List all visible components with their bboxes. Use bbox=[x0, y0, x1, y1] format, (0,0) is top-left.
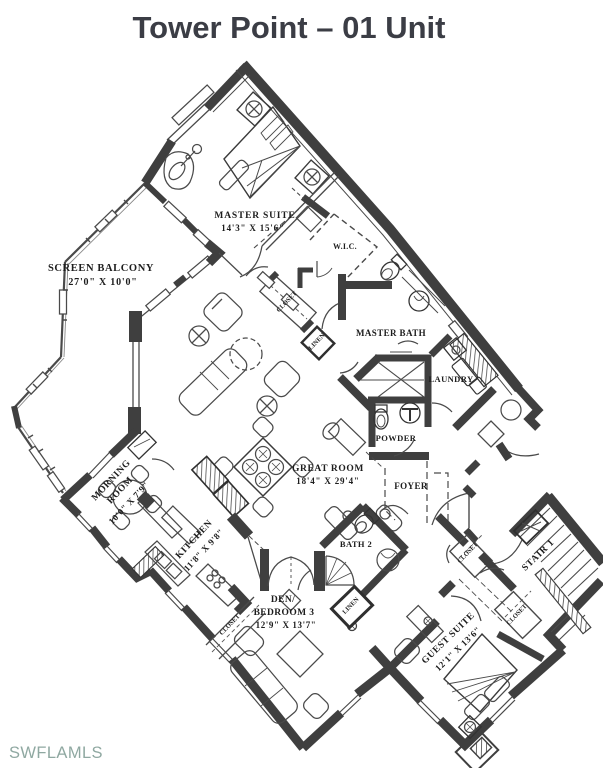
svg-text:CLOSET: CLOSET bbox=[456, 541, 480, 565]
svg-text:FOYER: FOYER bbox=[394, 481, 428, 491]
svg-text:POWDER: POWDER bbox=[376, 433, 417, 443]
svg-text:CLOSET: CLOSET bbox=[505, 603, 529, 627]
svg-text:MASTER SUITE: MASTER SUITE bbox=[214, 211, 295, 221]
svg-text:DEN/: DEN/ bbox=[271, 595, 295, 605]
svg-text:12'9" X 13'7": 12'9" X 13'7" bbox=[256, 620, 317, 630]
svg-text:SCREEN BALCONY: SCREEN BALCONY bbox=[48, 263, 154, 274]
svg-text:SWFLAMLS: SWFLAMLS bbox=[9, 744, 103, 762]
svg-text:MASTER BATH: MASTER BATH bbox=[356, 328, 426, 338]
svg-text:14'3" X 15'6": 14'3" X 15'6" bbox=[221, 223, 284, 233]
svg-text:27'0" X 10'0": 27'0" X 10'0" bbox=[68, 277, 137, 288]
svg-text:W.I.C.: W.I.C. bbox=[333, 242, 357, 251]
svg-text:BATH 2: BATH 2 bbox=[340, 539, 372, 549]
svg-text:LAUNDRY: LAUNDRY bbox=[428, 374, 473, 384]
svg-text:GREAT ROOM: GREAT ROOM bbox=[292, 464, 364, 474]
svg-text:18'4" X 29'4": 18'4" X 29'4" bbox=[296, 476, 359, 486]
svg-text:BEDROOM 3: BEDROOM 3 bbox=[254, 608, 315, 618]
svg-text:Tower Point – 01 Unit: Tower Point – 01 Unit bbox=[133, 10, 446, 45]
